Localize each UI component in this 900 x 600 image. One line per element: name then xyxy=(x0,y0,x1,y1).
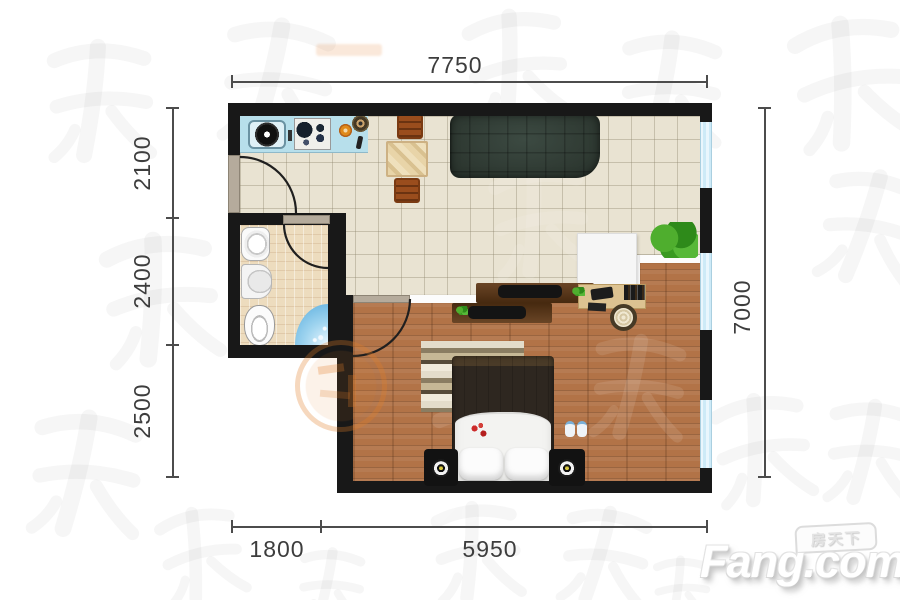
dim-label-top: 7750 xyxy=(405,52,505,79)
dim-tick xyxy=(758,107,771,109)
dim-label-left-3: 2500 xyxy=(129,351,153,471)
dim-tick xyxy=(166,107,179,109)
dim-tick xyxy=(166,476,179,478)
dim-line-right xyxy=(764,108,766,478)
seal-glyph xyxy=(348,375,356,407)
dim-label-left-2: 2400 xyxy=(129,221,153,341)
floor-plan-page: 7750 1800 5950 2100 2400 2500 7000 房天下 F… xyxy=(0,0,900,600)
dim-line-top xyxy=(232,81,707,83)
dim-label-bottom-right: 5950 xyxy=(440,536,540,563)
dim-tick xyxy=(231,75,233,88)
bathroom-door-arc xyxy=(284,224,328,268)
seal-glyph xyxy=(320,390,350,400)
dim-tick xyxy=(758,476,771,478)
seal-watermark xyxy=(295,340,387,432)
dim-label-bottom-left: 1800 xyxy=(227,536,327,563)
dim-tick xyxy=(706,75,708,88)
fang-logo: Fang.com xyxy=(700,536,900,588)
dim-tick xyxy=(320,520,322,533)
dim-tick xyxy=(166,344,179,346)
dim-label-left-1: 2100 xyxy=(129,103,153,223)
seal-glyph xyxy=(318,363,345,375)
dim-label-right: 7000 xyxy=(729,247,753,367)
seal-smudge-top xyxy=(316,44,382,56)
entry-door-arc xyxy=(240,157,296,213)
dim-tick xyxy=(706,520,708,533)
dim-line-bottom xyxy=(232,526,707,528)
dim-tick xyxy=(231,520,233,533)
dim-tick xyxy=(166,217,179,219)
dim-line-left xyxy=(172,108,174,478)
